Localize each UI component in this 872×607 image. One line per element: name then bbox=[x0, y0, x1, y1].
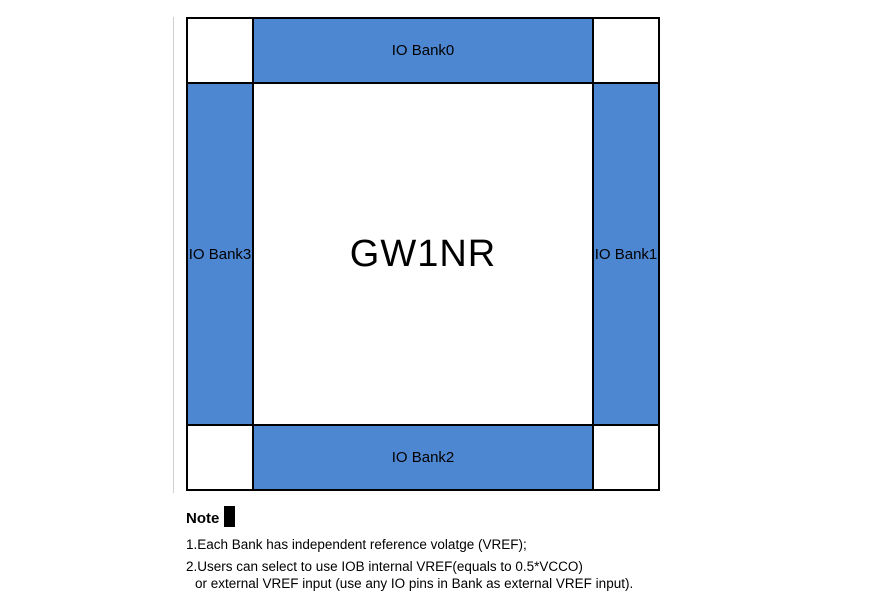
io-bank0-region: IO Bank0 bbox=[254, 19, 592, 82]
note-heading: Note bbox=[186, 510, 219, 527]
note-item-1: 1.Each Bank has independent reference vo… bbox=[186, 537, 666, 553]
corner-bottom-left bbox=[188, 426, 252, 489]
io-bank-diagram: IO Bank0 IO Bank3 GW1NR IO Bank1 IO Bank… bbox=[186, 17, 660, 491]
io-bank3-label: IO Bank3 bbox=[189, 247, 252, 262]
corner-bottom-right bbox=[594, 426, 658, 489]
note-item-2-continued: or external VREF input (use any IO pins … bbox=[186, 576, 666, 592]
chip-core-region: GW1NR bbox=[254, 84, 592, 424]
document-table-edge-line bbox=[173, 17, 174, 493]
io-bank2-label: IO Bank2 bbox=[392, 450, 455, 465]
note-item-2: 2.Users can select to use IOB internal V… bbox=[186, 559, 666, 575]
note-heading-row: Note bbox=[186, 506, 666, 530]
io-bank0-label: IO Bank0 bbox=[392, 43, 455, 58]
black-block-glyph bbox=[224, 506, 235, 527]
corner-top-right bbox=[594, 19, 658, 82]
note-section: Note 1.Each Bank has independent referen… bbox=[186, 506, 666, 592]
io-bank1-region: IO Bank1 bbox=[594, 84, 658, 424]
io-bank3-region: IO Bank3 bbox=[188, 84, 252, 424]
chip-name-label: GW1NR bbox=[350, 233, 496, 276]
io-bank1-label: IO Bank1 bbox=[595, 247, 658, 262]
io-bank2-region: IO Bank2 bbox=[254, 426, 592, 489]
corner-top-left bbox=[188, 19, 252, 82]
